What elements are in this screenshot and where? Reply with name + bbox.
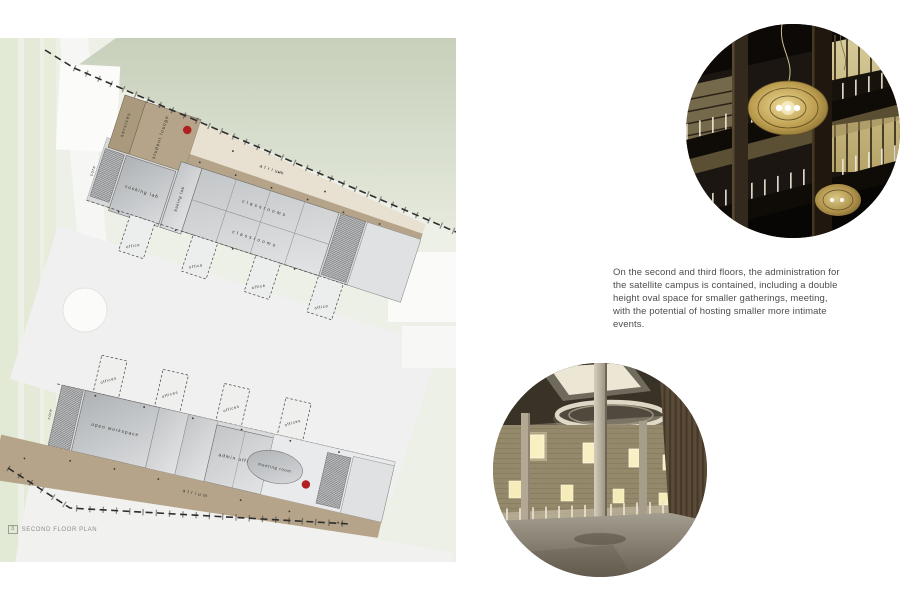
column-shadow bbox=[574, 533, 626, 545]
page-number: 3 bbox=[8, 525, 18, 534]
floor-plan-drawing: services student lounge atrium core cook… bbox=[0, 38, 456, 562]
floor-stain bbox=[503, 545, 633, 577]
body-text: On the second and third floors, the admi… bbox=[613, 266, 845, 331]
skylight-right bbox=[661, 363, 707, 381]
plan-caption-text: SECOND FLOOR PLAN bbox=[22, 527, 98, 533]
vignette-top bbox=[686, 24, 900, 238]
portfolio-page: { "page": { "width": 900, "height": 600,… bbox=[0, 0, 900, 600]
round-plaza bbox=[63, 288, 107, 332]
plan-caption: 3 SECOND FLOOR PLAN bbox=[8, 525, 97, 534]
interior-hall-render-image bbox=[493, 363, 707, 577]
floor-plan: services student lounge atrium core cook… bbox=[0, 38, 456, 562]
interior-atrium-render-image bbox=[686, 24, 900, 238]
parcel-right-lower bbox=[402, 326, 456, 368]
column-mid-right bbox=[639, 421, 647, 527]
